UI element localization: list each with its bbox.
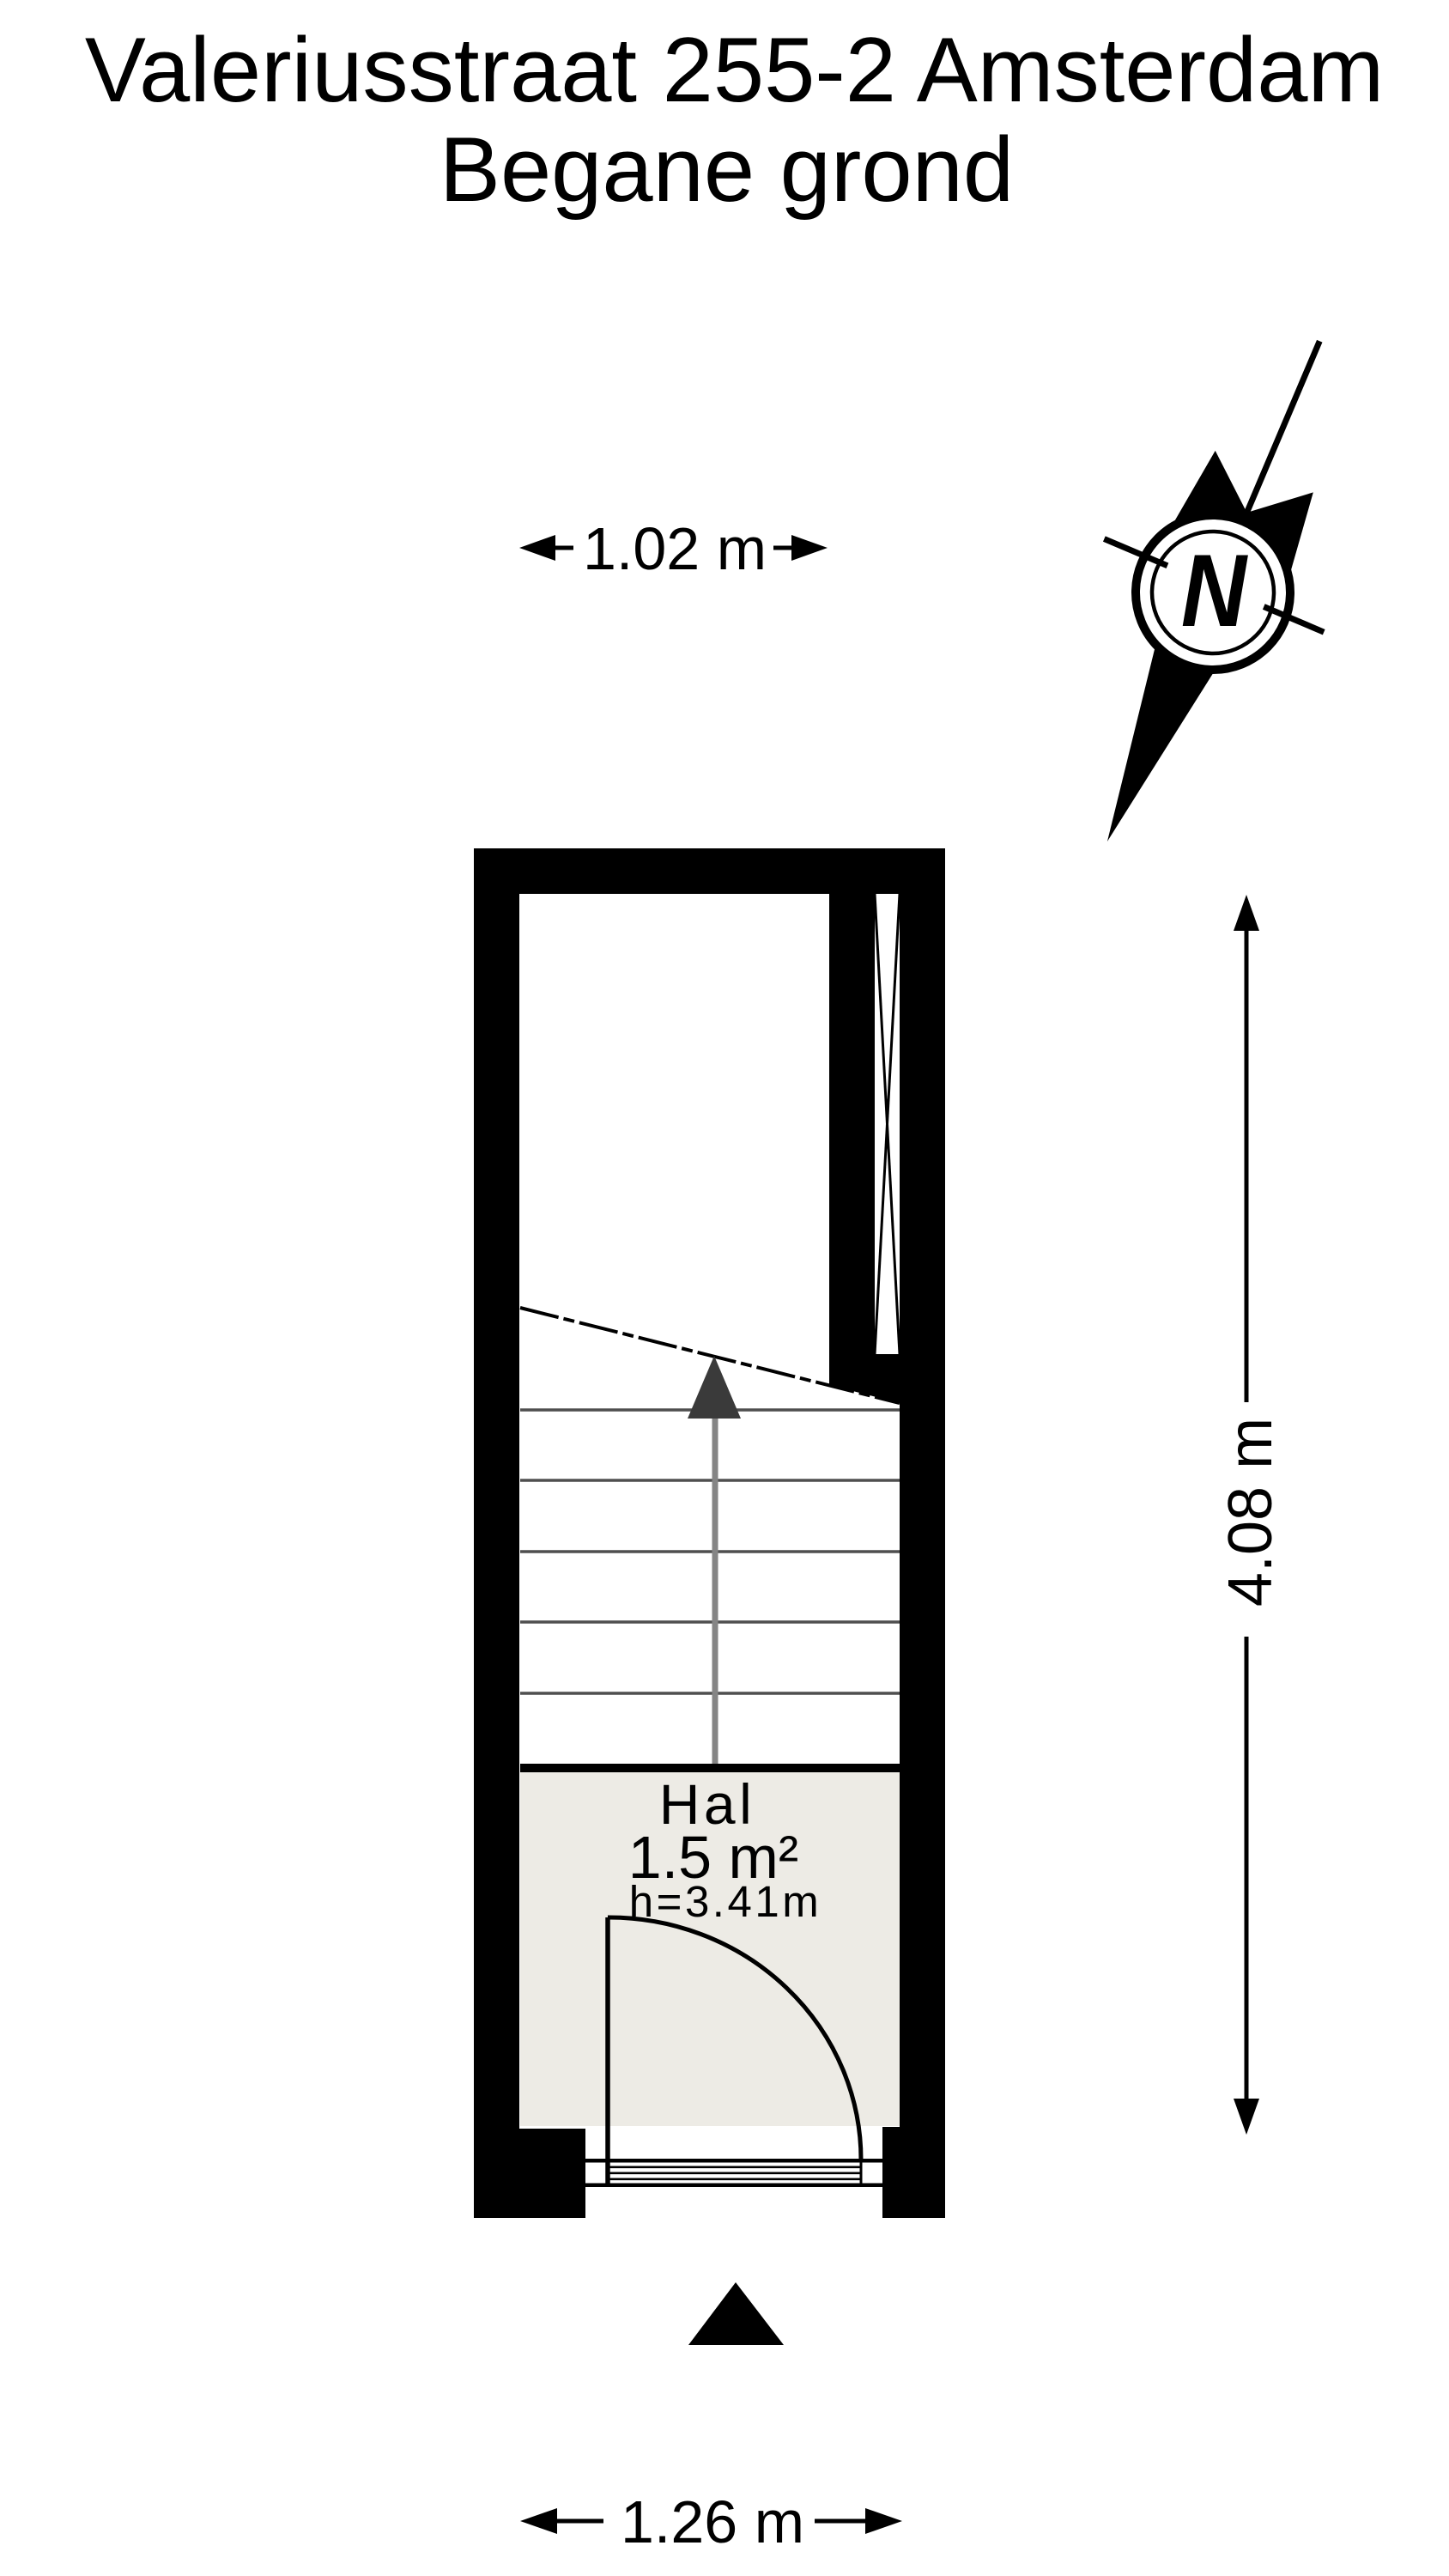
svg-text:Begane grond: Begane grond (440, 118, 1014, 221)
svg-text:1.26 m: 1.26 m (621, 2488, 804, 2555)
svg-text:1.02 m: 1.02 m (583, 515, 767, 582)
svg-text:4.08 m: 4.08 m (1216, 1418, 1285, 1607)
svg-text:h=3.41m: h=3.41m (629, 1877, 822, 1926)
svg-text:N: N (1181, 533, 1248, 648)
svg-text:Valeriusstraat 255-2 Amsterdam: Valeriusstraat 255-2 Amsterdam (85, 19, 1384, 121)
